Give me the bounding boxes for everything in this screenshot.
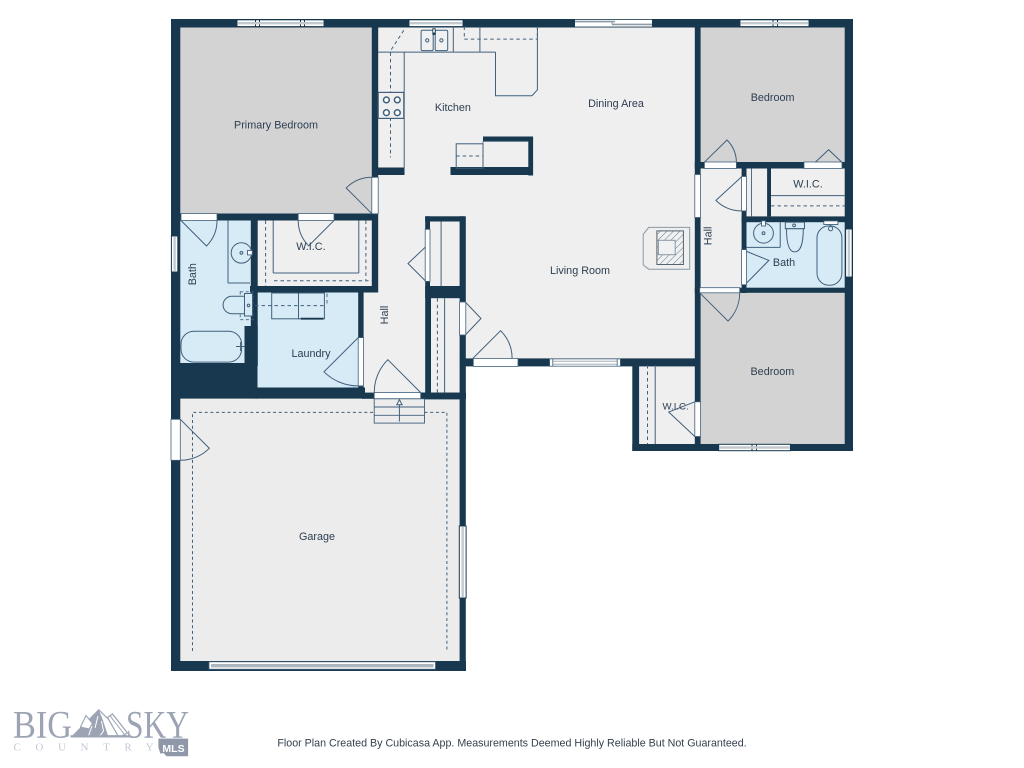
svg-text:BIG: BIG — [13, 704, 72, 747]
svg-text:Bedroom: Bedroom — [751, 92, 795, 104]
svg-text:Kitchen: Kitchen — [435, 102, 471, 114]
svg-text:Dining Area: Dining Area — [588, 98, 644, 110]
svg-text:Floor Plan Created By Cubicasa: Floor Plan Created By Cubicasa App. Meas… — [277, 738, 746, 750]
svg-text:MLS: MLS — [162, 743, 184, 755]
svg-text:Bedroom: Bedroom — [750, 366, 794, 378]
svg-text:Hall: Hall — [379, 306, 391, 325]
svg-text:Primary Bedroom: Primary Bedroom — [234, 120, 318, 132]
svg-text:W.I.C.: W.I.C. — [793, 179, 822, 191]
svg-text:Living Room: Living Room — [550, 265, 610, 277]
svg-text:Bath: Bath — [187, 263, 199, 285]
svg-text:Bath: Bath — [773, 257, 795, 269]
svg-text:Laundry: Laundry — [291, 348, 331, 360]
svg-text:Garage: Garage — [299, 531, 335, 543]
svg-text:COUNTRY: COUNTRY — [14, 742, 169, 754]
svg-text:W.I.C.: W.I.C. — [663, 402, 689, 413]
svg-text:Hall: Hall — [702, 227, 714, 246]
svg-text:W.I.C.: W.I.C. — [296, 241, 325, 253]
